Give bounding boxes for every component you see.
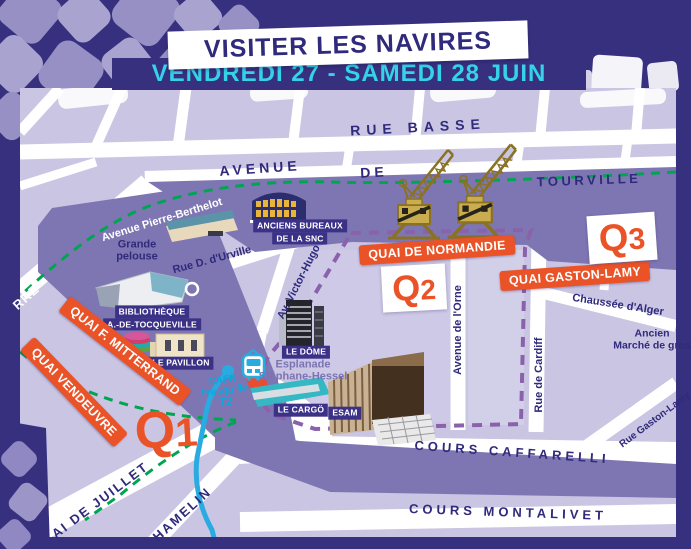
marker-q2: Q2 (381, 263, 447, 312)
label-rue-cardiff: Rue de Cardiff (533, 337, 545, 412)
poi-anciens-bureaux-snc: ANCIENS BUREAUXDE LA SNC (253, 219, 347, 244)
label-avenue-orne: Avenue de l'Orne (452, 285, 464, 375)
marker-q1: Q1 (133, 402, 198, 457)
label-grande-pelouse: Grandepelouse (116, 239, 158, 264)
pavillon-building (150, 334, 204, 358)
event-title: VISITER LES NAVIRES (204, 26, 493, 64)
label-ancien-marche: AncienMarché de gros (613, 328, 691, 352)
poi-bibliotheque: BIBLIOTHÈQUEA.-DE-TOCQUEVILLE (103, 305, 201, 330)
marker-q3: Q3 (586, 212, 657, 265)
label-esplanade-hessel: EsplanadeStéphane-Hessel (259, 359, 348, 384)
poi-cargo: LE CARGÖ (274, 404, 328, 417)
label-de: DE (360, 163, 388, 180)
decor-pattern-bottom-left (0, 420, 50, 549)
poi-dome: LE DÔME (282, 346, 330, 359)
event-map-flyer: RUE BASSE AVENUE DE TOURVILLE COURS CAFF… (0, 0, 691, 549)
poi-esam: ESAM (328, 407, 361, 420)
label-tram-caen-presquile: CAEN Presqu'île T2 (198, 372, 250, 413)
